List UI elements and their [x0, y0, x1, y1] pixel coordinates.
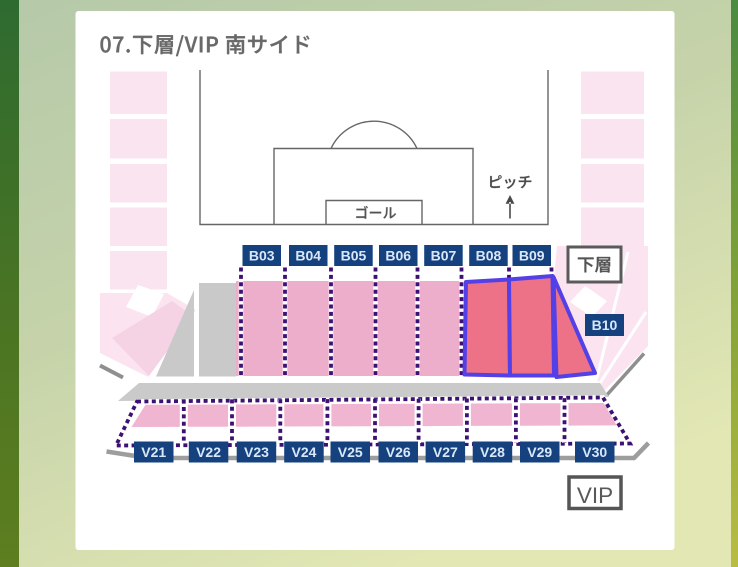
svg-text:B06: B06: [385, 248, 411, 264]
svg-text:B08: B08: [476, 248, 502, 264]
svg-text:V29: V29: [527, 444, 552, 460]
svg-text:V25: V25: [338, 444, 363, 460]
svg-text:VIP: VIP: [577, 483, 613, 508]
svg-text:V27: V27: [433, 444, 458, 460]
svg-text:V26: V26: [386, 444, 411, 460]
svg-text:B05: B05: [341, 248, 367, 264]
svg-text:V21: V21: [141, 444, 166, 460]
svg-text:B09: B09: [519, 248, 545, 264]
svg-text:V23: V23: [244, 444, 269, 460]
svg-text:B03: B03: [249, 248, 275, 264]
svg-text:B07: B07: [431, 248, 457, 264]
svg-text:V28: V28: [480, 444, 505, 460]
svg-text:V22: V22: [196, 444, 221, 460]
svg-text:B04: B04: [295, 248, 321, 264]
svg-text:V30: V30: [582, 444, 607, 460]
svg-text:B10: B10: [592, 317, 618, 333]
svg-text:V24: V24: [291, 444, 316, 460]
